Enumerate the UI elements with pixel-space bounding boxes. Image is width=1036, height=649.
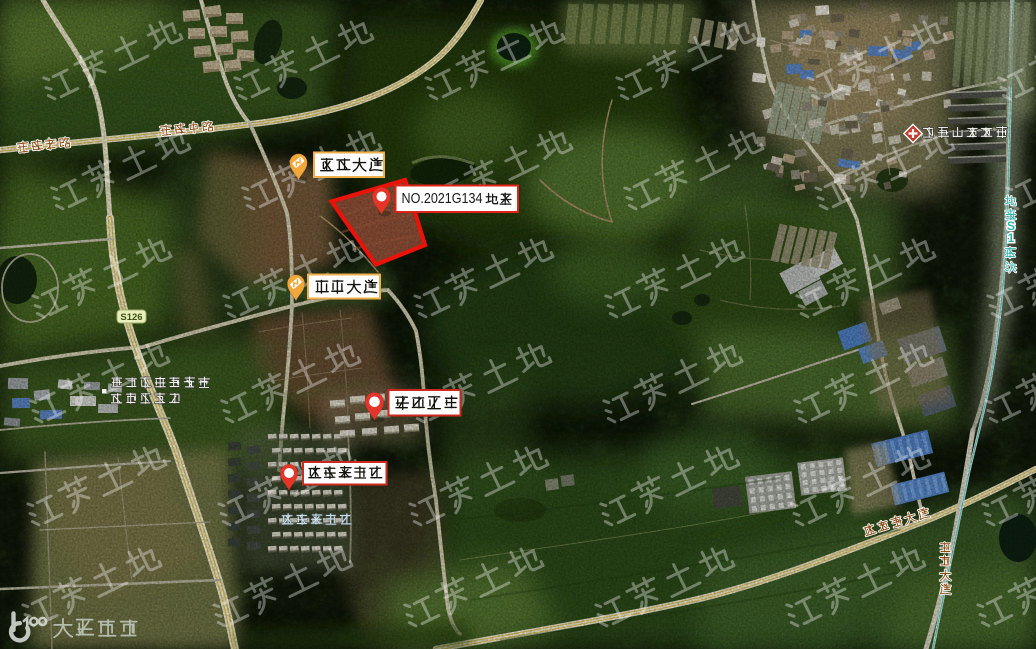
svg-text:S126: S126 (120, 312, 142, 323)
svg-text:NO.2021G134: NO.2021G134 (402, 191, 483, 207)
svg-text:1: 1 (1008, 231, 1015, 245)
